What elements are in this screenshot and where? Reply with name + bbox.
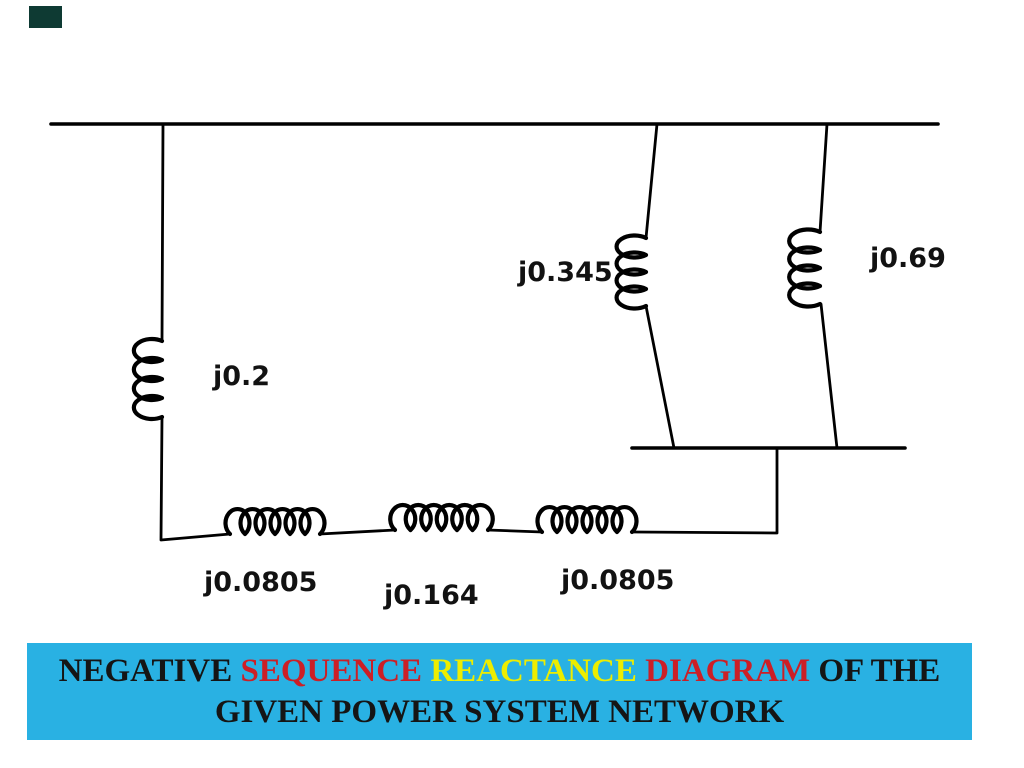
label-j0-2: j0.2 [213, 363, 270, 390]
label-j0-0805-left: j0.0805 [204, 569, 317, 596]
title-word-sequence: SEQUENCE [241, 653, 431, 689]
inductor-coil-j0-345 [617, 236, 646, 309]
title-banner: NEGATIVE SEQUENCE REACTANCE DIAGRAM OF T… [27, 643, 972, 740]
series-connector-2 [488, 530, 542, 532]
title-line-2: GIVEN POWER SYSTEM NETWORK [27, 692, 972, 733]
inductor-coil-j0-164 [390, 505, 492, 530]
inductor-coil-j0-0805-right [538, 507, 637, 532]
label-j0-345: j0.345 [518, 259, 613, 286]
series-to-bus-wire [632, 448, 777, 533]
title-word-reactance: REACTANCE [430, 653, 645, 689]
inductor-coil-j0-2 [134, 339, 162, 419]
series-connector-1 [320, 530, 395, 534]
right-branch-wire-upper [820, 124, 827, 232]
inductor-coil-j0-0805-left [226, 509, 325, 534]
left-branch-wire-lower [161, 417, 230, 540]
right-branch-wire-lower [821, 304, 837, 448]
label-j0-164: j0.164 [384, 582, 479, 609]
slide: j0.2 j0.345 j0.69 j0.0805 j0.164 j0.0805… [0, 0, 1024, 768]
middle-branch-wire-lower [646, 306, 674, 448]
label-j0-0805-right: j0.0805 [561, 567, 674, 594]
title-word-of-the: OF THE [818, 653, 940, 689]
title-line-1: NEGATIVE SEQUENCE REACTANCE DIAGRAM OF T… [27, 651, 972, 692]
label-j0-69: j0.69 [870, 245, 946, 272]
title-word-negative: NEGATIVE [59, 653, 241, 689]
left-branch-wire-upper [162, 124, 163, 341]
middle-branch-wire-upper [646, 124, 657, 238]
inductor-coil-j0-69 [789, 230, 820, 307]
title-word-diagram: DIAGRAM [645, 653, 818, 689]
